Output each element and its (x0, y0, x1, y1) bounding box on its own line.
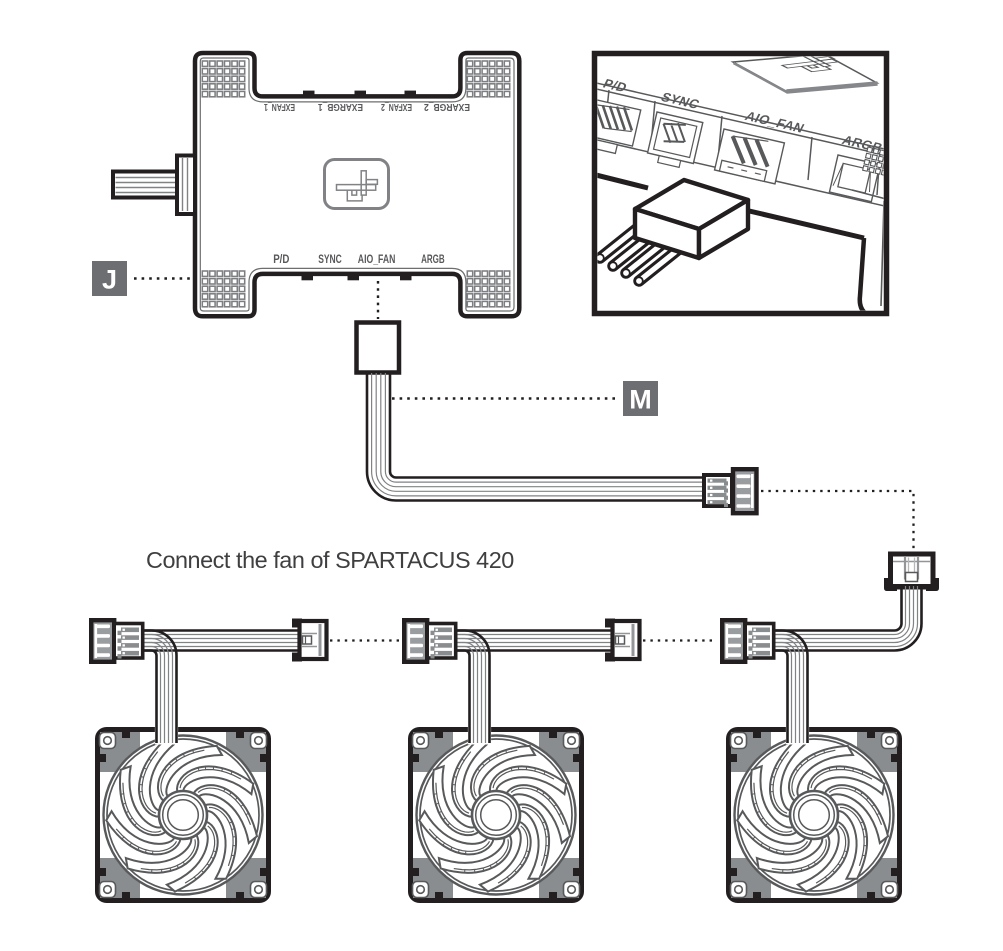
svg-text:EXFAN_1: EXFAN_1 (264, 101, 295, 112)
svg-text:P/D: P/D (273, 254, 289, 266)
svg-text:ARGB: ARGB (421, 254, 445, 266)
svg-text:AIO_FAN: AIO_FAN (358, 254, 396, 266)
svg-text:EXARGB_2: EXARGB_2 (424, 101, 470, 112)
svg-text:SYNC: SYNC (318, 254, 342, 266)
svg-text:J: J (102, 265, 117, 295)
svg-text:Connect the fan of SPARTACUS 4: Connect the fan of SPARTACUS 420 (146, 547, 514, 573)
svg-text:EXFAN_2: EXFAN_2 (381, 101, 412, 112)
svg-text:M: M (629, 385, 652, 415)
svg-text:EXARGB_1: EXARGB_1 (318, 101, 363, 112)
